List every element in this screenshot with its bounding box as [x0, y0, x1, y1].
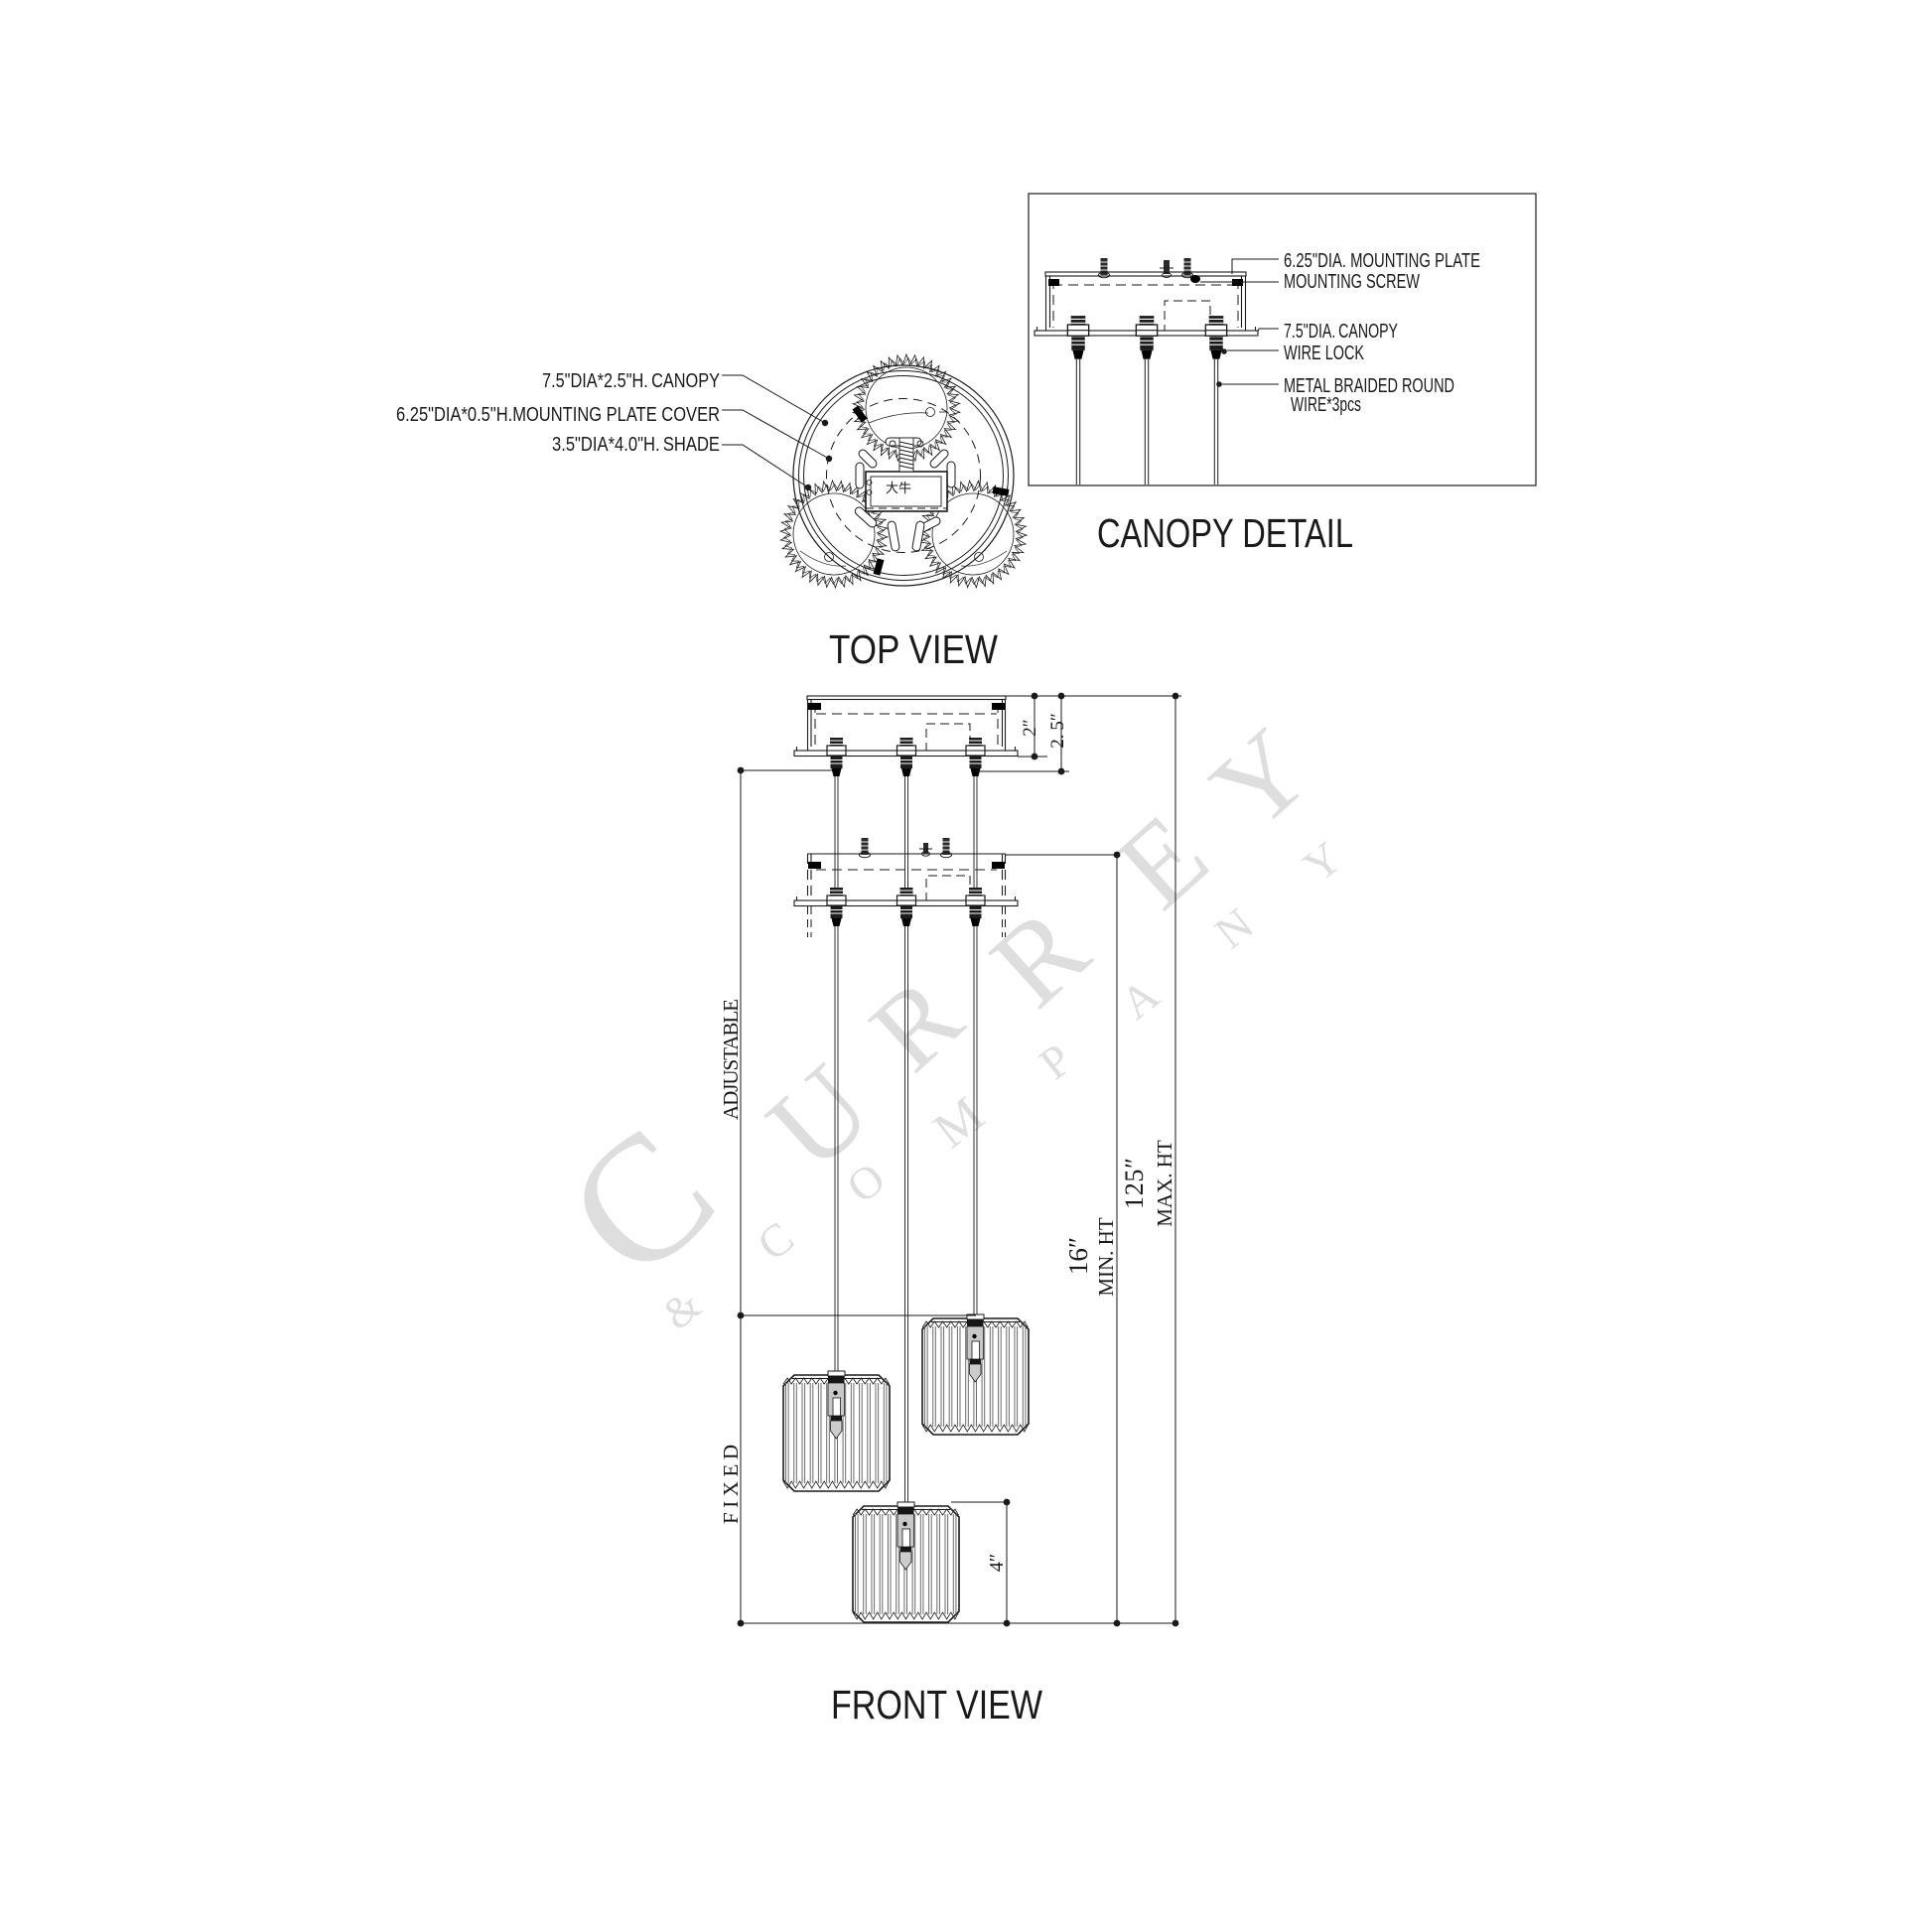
svg-text:ADJUSTABLE: ADJUSTABLE — [719, 999, 743, 1120]
svg-text:3.5"DIA*4.0"H. SHADE: 3.5"DIA*4.0"H. SHADE — [552, 434, 720, 456]
svg-text:6.25"DIA*0.5"H.MOUNTING PLATE: 6.25"DIA*0.5"H.MOUNTING PLATE COVER — [396, 404, 720, 426]
svg-text:2. 5″: 2. 5″ — [1047, 713, 1068, 748]
svg-text:2″: 2″ — [1020, 719, 1040, 736]
svg-text:WIRE LOCK: WIRE LOCK — [1284, 343, 1364, 364]
svg-text:MIN. HT: MIN. HT — [1094, 1217, 1118, 1296]
svg-text:125″: 125″ — [1120, 1158, 1149, 1209]
svg-text:WIRE*3pcs: WIRE*3pcs — [1291, 394, 1361, 416]
svg-text:大牛: 大牛 — [886, 481, 911, 495]
svg-text:FRONT VIEW: FRONT VIEW — [831, 1682, 1042, 1727]
svg-text:MAX. HT: MAX. HT — [1153, 1140, 1176, 1227]
svg-text:MOUNTING SCREW: MOUNTING SCREW — [1284, 271, 1420, 293]
svg-text:7.5"DIA*2.5"H. CANOPY: 7.5"DIA*2.5"H. CANOPY — [542, 370, 720, 392]
svg-text:6.25"DIA. MOUNTING PLATE: 6.25"DIA. MOUNTING PLATE — [1284, 250, 1480, 272]
svg-text:4″: 4″ — [986, 1554, 1008, 1572]
svg-text:7.5"DIA. CANOPY: 7.5"DIA. CANOPY — [1284, 321, 1398, 343]
svg-text:CANOPY DETAIL: CANOPY DETAIL — [1097, 510, 1353, 556]
svg-text:16″: 16″ — [1063, 1237, 1093, 1275]
svg-text:TOP VIEW: TOP VIEW — [829, 626, 998, 672]
